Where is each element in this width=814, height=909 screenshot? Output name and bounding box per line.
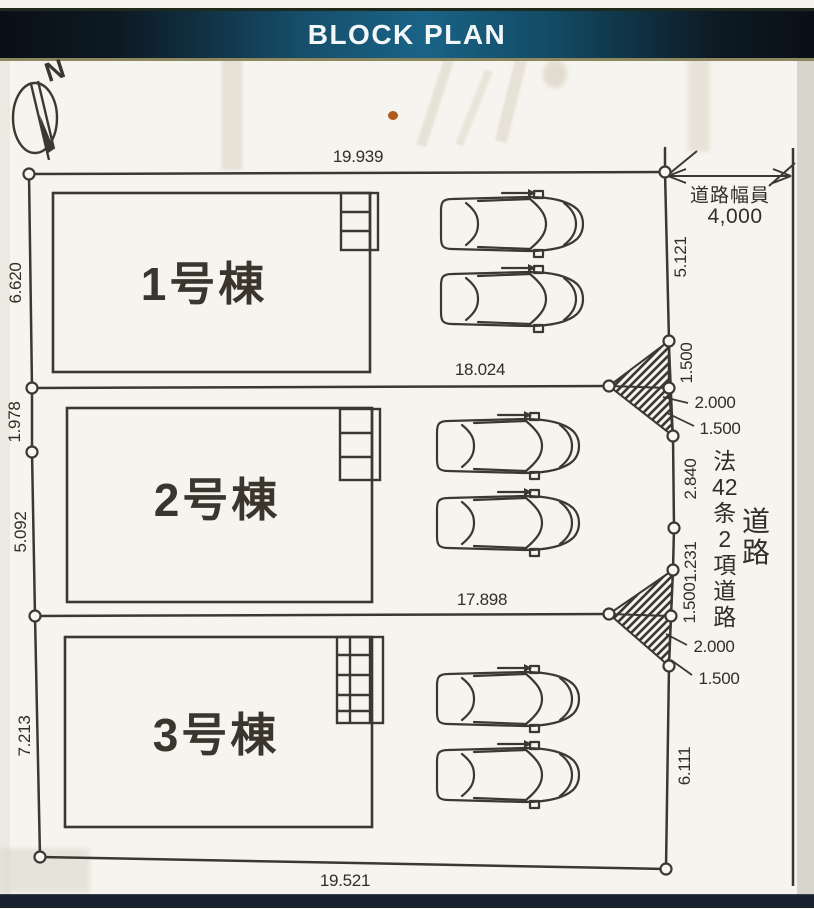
dim-bottom: 19.521 (320, 871, 370, 891)
dim-right-8: 2.000 (693, 637, 734, 657)
road-law-char: 道 (713, 578, 736, 604)
car-symbol (441, 189, 583, 257)
road-name-char: 道 (742, 506, 770, 537)
compass-icon (13, 81, 57, 160)
dim-right-2: 1.500 (677, 342, 697, 383)
dim-right-9: 1.500 (698, 669, 739, 689)
road-law-char: 条 (713, 500, 736, 526)
road-law-char: 2 (718, 526, 731, 552)
stair-symbol-3 (337, 637, 383, 723)
block-plan-page: BLOCK PLAN (0, 0, 814, 909)
parcel-boundary (29, 148, 674, 869)
building-3-label: 3号棟 (153, 699, 280, 765)
dim-right-7: 1.500 (680, 582, 700, 623)
stair-symbol-2 (340, 409, 380, 480)
building-1-label: 1号棟 (141, 248, 268, 314)
road-width-value: 4,000 (707, 205, 762, 229)
dim-right-6: 1.231 (681, 541, 701, 582)
dim-left-3: 5.092 (11, 511, 31, 552)
dim-left-1: 6.620 (6, 262, 26, 303)
car-symbol (437, 488, 579, 556)
lot-divider-2 (35, 614, 609, 616)
page-bottom-rule (0, 894, 814, 908)
dim-right-1: 5.121 (671, 236, 691, 277)
boundary-points (24, 167, 680, 875)
road-name-char: 路 (742, 537, 770, 568)
building-2-label: 2号棟 (154, 464, 281, 530)
car-symbol (437, 664, 579, 732)
road-name-label: 道 路 (742, 506, 770, 569)
car-symbol (437, 411, 579, 479)
dim-right-3: 2.000 (694, 393, 735, 413)
dim-left-4: 7.213 (15, 715, 35, 756)
road-law-char: 項 (713, 552, 736, 578)
lot-divider-1 (32, 386, 609, 388)
parked-cars (437, 189, 583, 808)
road-law-char: 42 (712, 474, 738, 500)
car-symbol (437, 740, 579, 808)
dim-right-4: 1.500 (699, 419, 740, 439)
dim-lot2-width: 17.898 (457, 590, 507, 610)
dim-right-10: 6.111 (675, 747, 695, 786)
boundary-bottom (40, 857, 666, 869)
road-width-label: 道路幅員 (690, 181, 770, 208)
corner-cut-hatch-2 (609, 570, 673, 666)
dim-left-2: 1.978 (5, 401, 25, 442)
road-law-char: 法 (713, 448, 736, 474)
boundary-top (29, 172, 665, 174)
dim-right-5: 2.840 (681, 458, 701, 499)
road-law-label: 法 42 条 2 項 道 路 (712, 448, 738, 630)
car-symbol (441, 264, 583, 332)
dim-top: 19.939 (333, 147, 383, 167)
road-law-char: 路 (713, 604, 736, 630)
stair-symbol-1 (341, 193, 378, 250)
dim-lot1-width: 18.024 (455, 360, 505, 380)
